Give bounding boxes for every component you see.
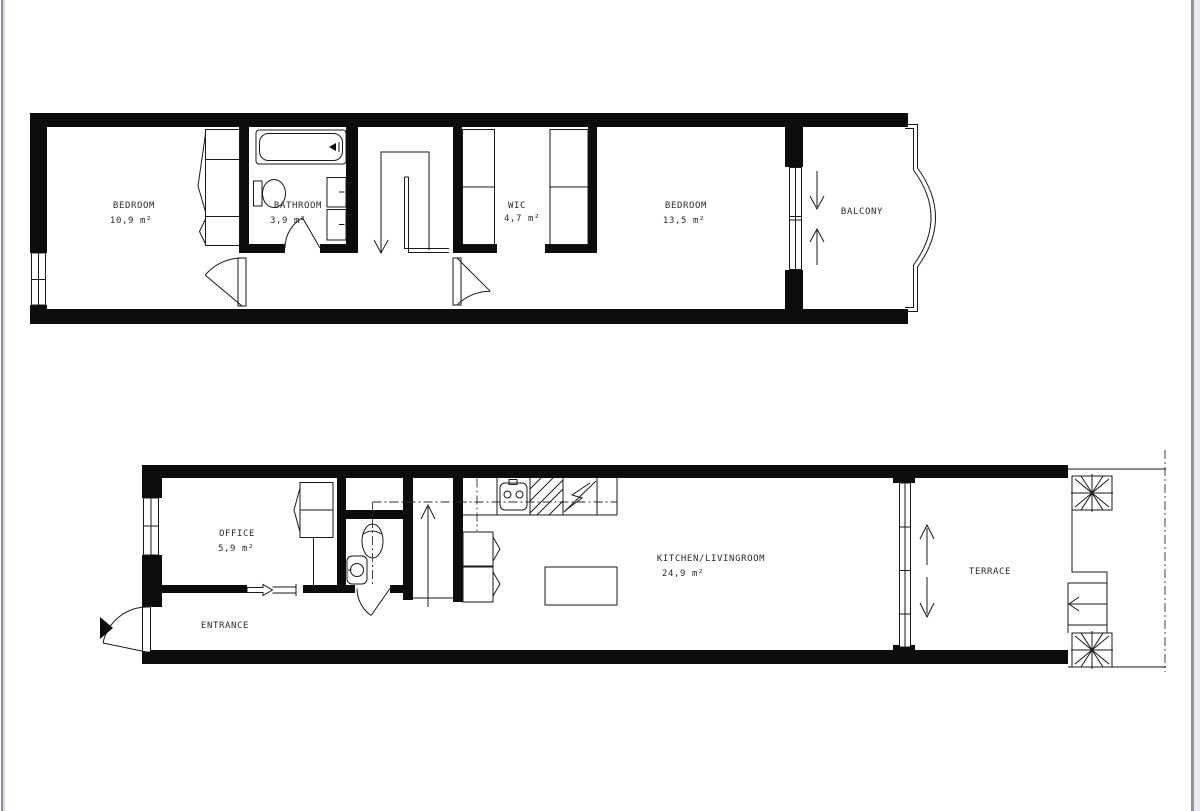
page-edge-left-inner — [3, 0, 5, 811]
office-window — [144, 498, 159, 555]
room-label-terrace: TERRACE — [969, 567, 1011, 577]
office-closet — [294, 483, 333, 586]
kitchen-stove — [564, 481, 596, 512]
kitchen-tall-cabinets — [463, 532, 500, 602]
terrace-planter-top-icon — [1071, 474, 1113, 512]
wc-door — [357, 589, 390, 616]
bathtub — [256, 130, 346, 164]
bathroom-vanity — [327, 178, 346, 241]
room-label-kitchen-livingroom: KITCHEN/LIVINGROOM — [657, 554, 765, 564]
terrace-planter-bottom-icon — [1071, 631, 1113, 669]
floor-plan-drawing — [0, 0, 1200, 811]
room-label-bathroom: BATHROOM — [274, 201, 322, 211]
room-label-office: OFFICE — [219, 529, 255, 539]
lower-floor-plan — [100, 450, 1166, 672]
lower-staircase — [413, 505, 453, 607]
room-label-entrance: ENTRANCE — [201, 621, 249, 631]
terrace-door-arrows-icon — [920, 525, 934, 617]
upper-floor-plan — [30, 113, 936, 324]
balcony-door-arrows-icon — [810, 171, 824, 265]
room-area-wic: 4,7 m² — [504, 214, 540, 224]
wic-closet-right — [550, 130, 588, 245]
bedroom1-door — [205, 258, 246, 306]
room-label-balcony: BALCONY — [841, 207, 883, 217]
bedroom1-window — [32, 253, 46, 305]
page-edge-right-outer — [1194, 0, 1200, 811]
room-area-bedroom2: 13,5 m² — [663, 216, 705, 226]
room-label-bedroom1: BEDROOM — [113, 201, 155, 211]
terrace-steps — [1068, 583, 1107, 633]
room-area-kitchen-livingroom: 24,9 m² — [662, 569, 704, 579]
room-label-bedroom2: BEDROOM — [665, 201, 707, 211]
room-area-bathroom: 3,9 m² — [270, 216, 306, 226]
balcony-railing — [905, 125, 936, 312]
office-sliding-door — [247, 584, 296, 596]
wic-closet-left — [463, 130, 495, 245]
upper-stair-door — [453, 258, 490, 305]
balcony-sliding-door — [790, 168, 802, 270]
terrace-sliding-door — [900, 483, 911, 647]
kitchen-sink — [500, 480, 527, 511]
upper-staircase — [374, 152, 449, 253]
dining-table — [545, 567, 617, 605]
room-area-bedroom1: 10,9 m² — [110, 216, 152, 226]
lower-walls — [142, 465, 1068, 664]
bedroom1-wardrobe — [198, 130, 240, 246]
floor-plan-page: BEDROOM 10,9 m² BATHROOM 3,9 m² WIC 4,7 … — [0, 0, 1200, 811]
kitchen-dishwasher-hatch — [530, 478, 563, 515]
wc-sink — [347, 556, 367, 584]
room-label-wic: WIC — [508, 201, 526, 211]
entrance-direction-icon — [100, 617, 113, 639]
room-area-office: 5,9 m² — [218, 544, 254, 554]
